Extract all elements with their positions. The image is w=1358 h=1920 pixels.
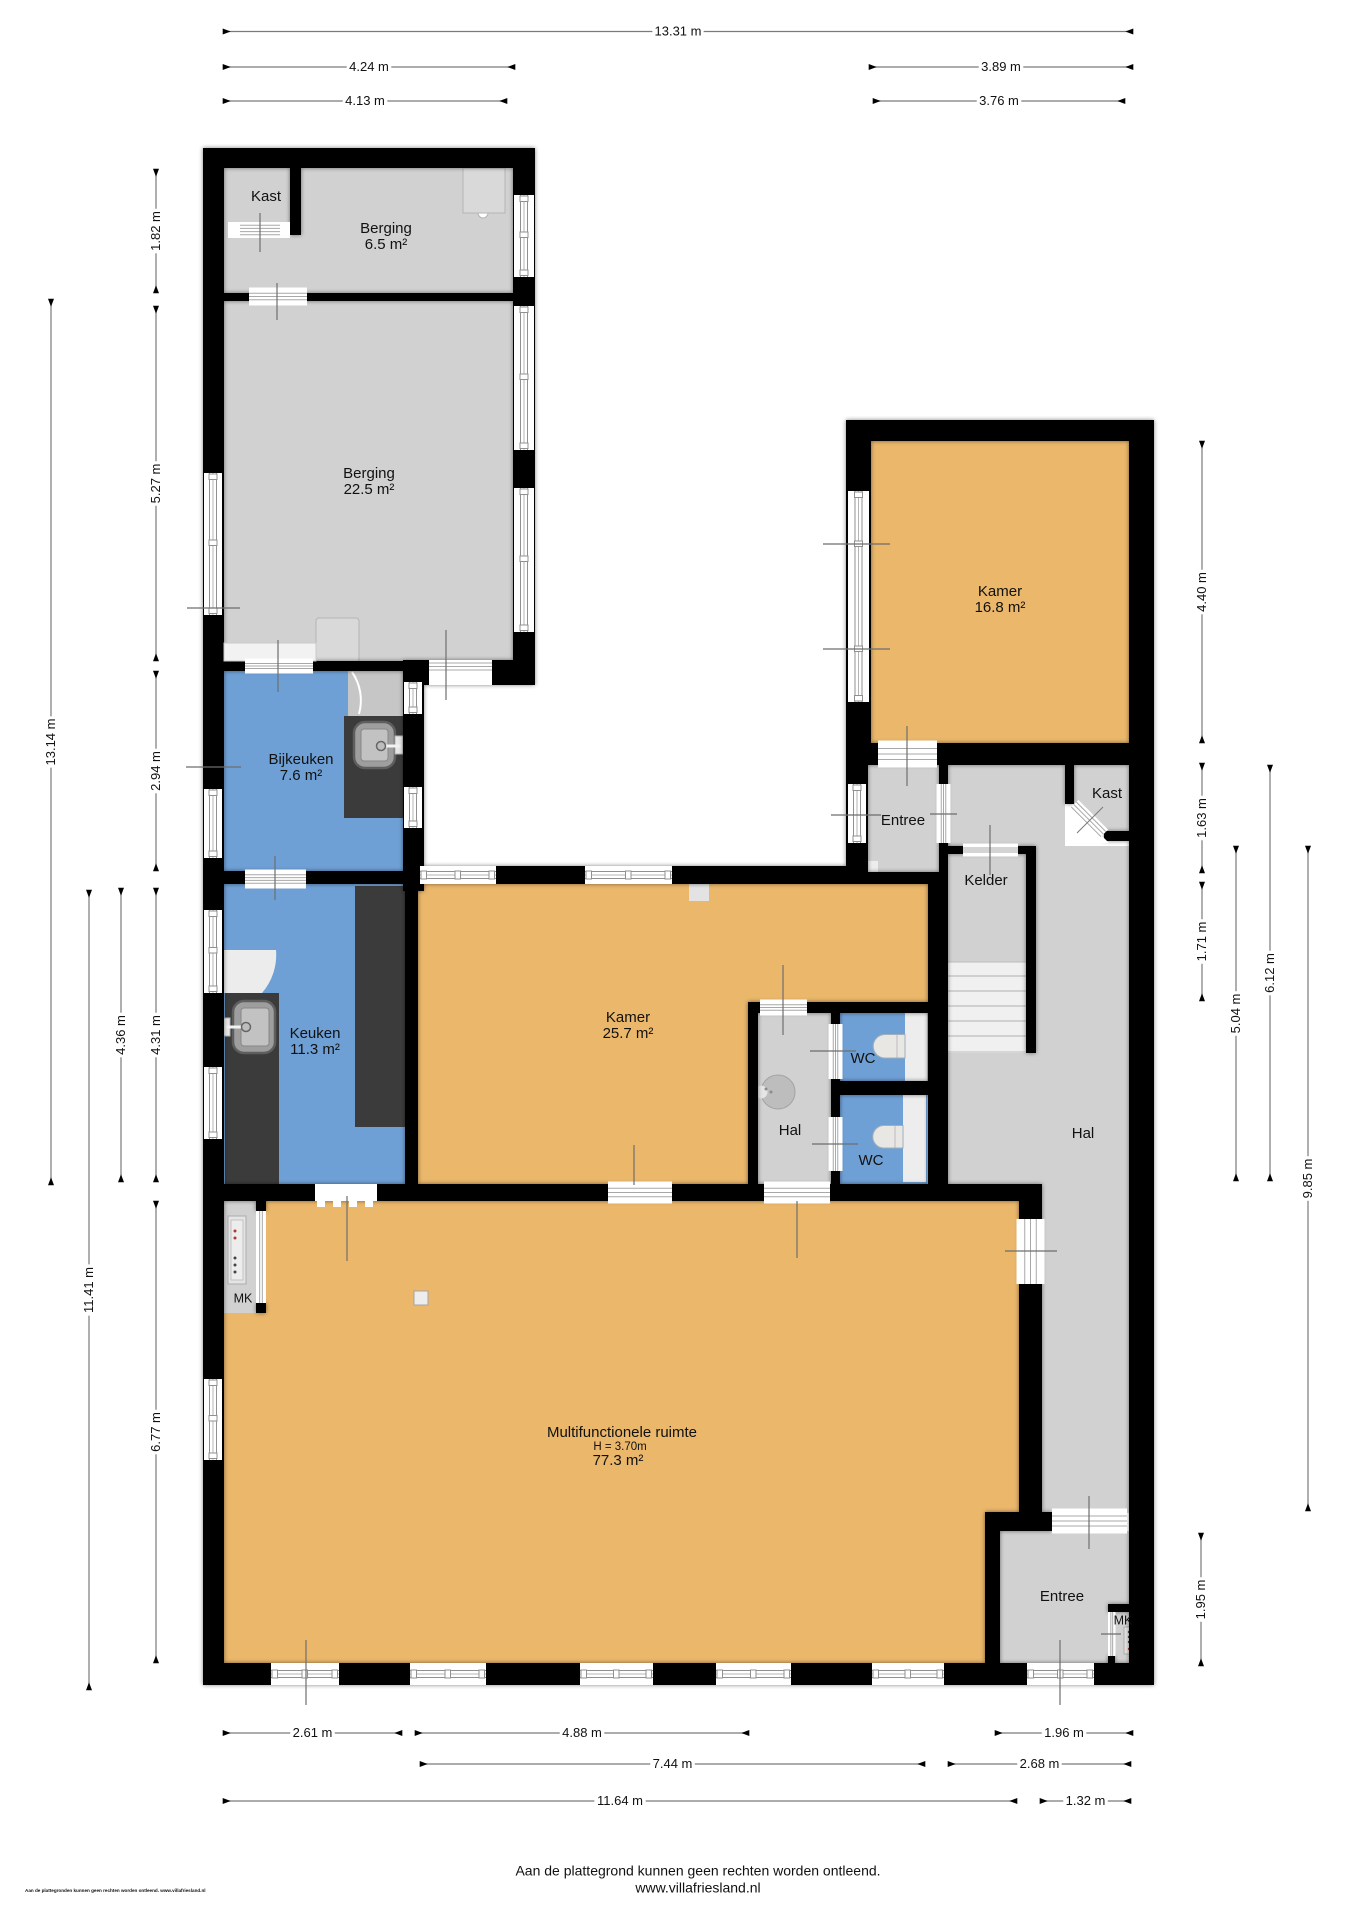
svg-text:WC: WC xyxy=(851,1050,876,1067)
svg-text:4.36 m: 4.36 m xyxy=(113,1015,128,1055)
svg-text:Berging: Berging xyxy=(360,220,412,237)
svg-text:Kast: Kast xyxy=(1092,785,1123,802)
svg-text:11.41 m: 11.41 m xyxy=(81,1267,96,1313)
svg-text:13.14 m: 13.14 m xyxy=(43,719,58,766)
svg-text:Bijkeuken: Bijkeuken xyxy=(268,751,333,768)
svg-text:9.85 m: 9.85 m xyxy=(1300,1159,1315,1199)
svg-text:1.32 m: 1.32 m xyxy=(1066,1793,1106,1808)
svg-text:25.7 m²: 25.7 m² xyxy=(603,1025,654,1042)
svg-text:Hal: Hal xyxy=(779,1122,802,1139)
svg-text:Kamer: Kamer xyxy=(978,583,1022,600)
svg-text:1.63 m: 1.63 m xyxy=(1194,798,1209,838)
svg-text:1.82 m: 1.82 m xyxy=(148,211,163,251)
svg-text:6.5 m²: 6.5 m² xyxy=(365,236,408,253)
svg-text:Kelder: Kelder xyxy=(964,872,1007,889)
svg-text:6.77 m: 6.77 m xyxy=(148,1412,163,1452)
svg-text:Aan de plattegrond kunnen geen: Aan de plattegrond kunnen geen rechten w… xyxy=(515,1863,880,1879)
svg-text:1.96 m: 1.96 m xyxy=(1044,1725,1084,1740)
svg-text:5.04 m: 5.04 m xyxy=(1228,994,1243,1034)
svg-text:7.44 m: 7.44 m xyxy=(653,1756,693,1771)
svg-text:MK: MK xyxy=(1114,1613,1133,1627)
svg-text:7.6 m²: 7.6 m² xyxy=(280,767,323,784)
svg-text:4.24 m: 4.24 m xyxy=(349,59,389,74)
svg-text:Entree: Entree xyxy=(1040,1588,1084,1605)
svg-text:4.31 m: 4.31 m xyxy=(148,1015,163,1055)
svg-text:3.89 m: 3.89 m xyxy=(981,59,1021,74)
svg-text:Entree: Entree xyxy=(881,812,925,829)
svg-text:www.villafriesland.nl: www.villafriesland.nl xyxy=(634,1880,760,1896)
svg-text:11.3 m²: 11.3 m² xyxy=(290,1041,340,1058)
svg-text:WC: WC xyxy=(859,1152,884,1169)
svg-text:16.8 m²: 16.8 m² xyxy=(975,599,1026,616)
svg-text:4.88 m: 4.88 m xyxy=(562,1725,602,1740)
svg-text:4.13 m: 4.13 m xyxy=(345,93,385,108)
svg-text:Berging: Berging xyxy=(343,465,395,482)
svg-text:Kamer: Kamer xyxy=(606,1009,650,1026)
svg-text:Aan de plattegronden kunnen ge: Aan de plattegronden kunnen geen rechten… xyxy=(25,1888,206,1893)
svg-text:1.71 m: 1.71 m xyxy=(1194,922,1209,962)
svg-text:4.40 m: 4.40 m xyxy=(1194,572,1209,612)
svg-text:2.68 m: 2.68 m xyxy=(1020,1756,1060,1771)
svg-text:6.12 m: 6.12 m xyxy=(1262,953,1277,993)
svg-text:5.27 m: 5.27 m xyxy=(148,464,163,504)
svg-text:77.3 m²: 77.3 m² xyxy=(593,1452,644,1469)
svg-text:2.61 m: 2.61 m xyxy=(293,1725,333,1740)
svg-text:Multifunctionele ruimte: Multifunctionele ruimte xyxy=(547,1424,697,1441)
svg-text:22.5 m²: 22.5 m² xyxy=(344,481,395,498)
svg-text:Hal: Hal xyxy=(1072,1125,1095,1142)
svg-text:MK: MK xyxy=(234,1291,253,1305)
svg-text:13.31 m: 13.31 m xyxy=(655,23,702,38)
svg-text:3.76 m: 3.76 m xyxy=(979,93,1019,108)
svg-text:Kast: Kast xyxy=(251,188,282,205)
svg-text:2.94 m: 2.94 m xyxy=(148,751,163,791)
svg-text:11.64 m: 11.64 m xyxy=(597,1793,643,1808)
svg-text:1.95 m: 1.95 m xyxy=(1193,1580,1208,1620)
svg-text:Keuken: Keuken xyxy=(290,1025,341,1042)
